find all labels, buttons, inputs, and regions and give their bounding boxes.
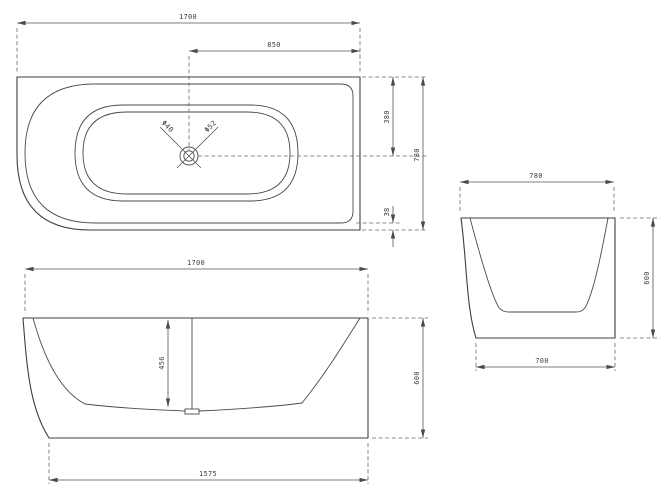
dimension-text: 700 — [535, 357, 549, 365]
side-view: 780 600 700 — [460, 172, 660, 371]
side-view-basin-profile — [470, 218, 608, 312]
drain-dim-right: Φ52 — [203, 119, 218, 134]
top-view-dim-overall-width: 780 — [413, 77, 423, 230]
dimension-text: 780 — [413, 148, 421, 162]
dimension-text: 456 — [158, 356, 166, 370]
front-view-right-inner-wall — [302, 318, 360, 403]
side-view-dim-base-width: 700 — [476, 343, 615, 371]
front-view-basin-floor — [85, 403, 302, 411]
side-view-dim-overall-height: 600 — [620, 218, 660, 338]
side-view-dim-overall-width: 780 — [460, 172, 614, 213]
side-view-left-outer-wall — [461, 218, 476, 338]
dimension-text: 1575 — [199, 470, 217, 478]
top-view-dim-rim-lip: 38 — [383, 206, 393, 247]
top-view-dim-drain-offset: 850 — [189, 41, 360, 51]
front-view: 1700 456 600 1575 — [23, 259, 428, 484]
dimension-text: 38 — [383, 207, 391, 216]
front-view-left-inner-wall — [33, 318, 85, 404]
dimension-text: 780 — [529, 172, 543, 180]
drain-dim-left: Φ40 — [160, 119, 175, 134]
drain-leader-left — [160, 127, 201, 168]
front-view-drain — [185, 409, 199, 414]
drawing-sheet: Φ40 Φ52 1700 850 380 38 — [0, 0, 672, 500]
bathtub-technical-drawing: Φ40 Φ52 1700 850 380 38 — [0, 0, 672, 500]
front-view-dim-overall-length: 1700 — [25, 259, 368, 314]
dimension-text: 1700 — [187, 259, 205, 267]
dimension-text: 600 — [413, 371, 421, 385]
drain-leader-right — [177, 127, 218, 168]
dimension-text: 1700 — [179, 13, 197, 21]
top-view: Φ40 Φ52 1700 850 380 38 — [17, 13, 428, 247]
dimension-text: 850 — [267, 41, 281, 49]
top-view-outer-outline — [17, 77, 360, 230]
front-view-left-outer-wall — [23, 318, 49, 438]
top-view-dim-overall-length: 1700 — [17, 13, 360, 72]
top-view-dim-drain-from-back: 380 — [383, 77, 393, 156]
front-view-dim-inner-depth: 456 — [158, 320, 168, 407]
dimension-text: 380 — [383, 110, 391, 124]
front-view-dim-overall-height: 600 — [372, 318, 428, 438]
front-view-dim-base-length: 1575 — [49, 443, 368, 484]
dimension-text: 600 — [643, 271, 651, 285]
